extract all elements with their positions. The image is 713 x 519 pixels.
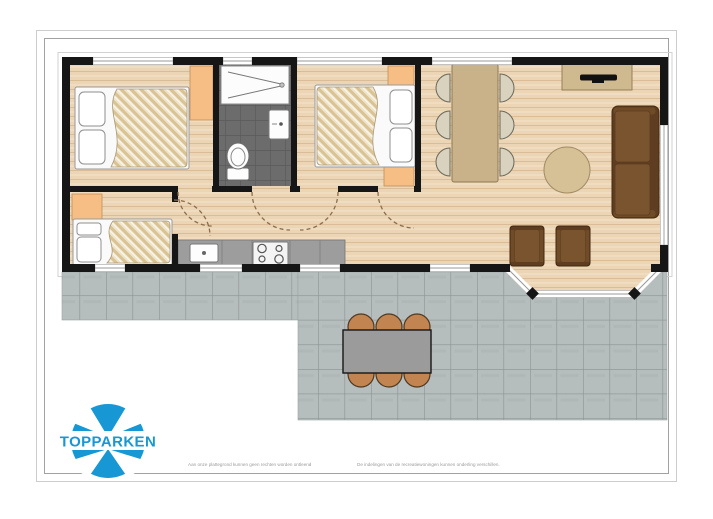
shower-icon [221,66,289,104]
floorplan-drawing: TOPPARKEN Aan onze plattegrond kunnen ge… [0,0,713,519]
single-bed-icon [73,219,172,265]
footer-left-note: Aan onze plattegrond kunnen geen rechten… [188,462,312,467]
coffee-table-icon [544,147,590,193]
tv-icon [580,75,617,81]
armchair-icon [510,226,544,266]
kitchen [178,240,345,266]
double-bed-icon [75,87,189,169]
footer-separator: · [309,462,311,467]
dining-table-icon [452,64,498,182]
dining-set-icon [436,64,514,182]
sofa-icon [612,106,659,218]
outdoor-dining-set [343,314,431,387]
footer-notes: Aan onze plattegrond kunnen geen rechten… [188,462,500,467]
pillow-icon [79,92,105,126]
cabinet-icon [388,66,414,86]
footer-right-note: De indelingen van de recreatiewoningen k… [357,462,500,467]
cooktop-icon [253,242,288,265]
cabinet-icon [72,194,102,220]
pillow-icon [79,130,105,164]
bay-post [500,264,510,272]
toilet-icon [227,143,249,180]
double-bed-icon [315,85,415,167]
outdoor-table-icon [343,330,431,373]
logo-brand-text: TOPPARKEN [60,434,156,451]
terrace-strip [62,272,298,320]
washbasin-icon [269,110,289,139]
pillow-icon [77,237,101,262]
bay-post [651,264,668,272]
sink-icon [190,244,218,262]
drawing-sheet: TOPPARKEN Aan onze plattegrond kunnen ge… [0,0,713,519]
wardrobe-icon [190,66,213,120]
pillow-icon [390,128,412,162]
pillow-icon [390,90,412,124]
pillow-icon [77,223,101,235]
topparken-logo: TOPPARKEN [60,404,156,478]
tv-cabinet-icon [562,64,632,90]
armchair-icon [556,226,590,266]
